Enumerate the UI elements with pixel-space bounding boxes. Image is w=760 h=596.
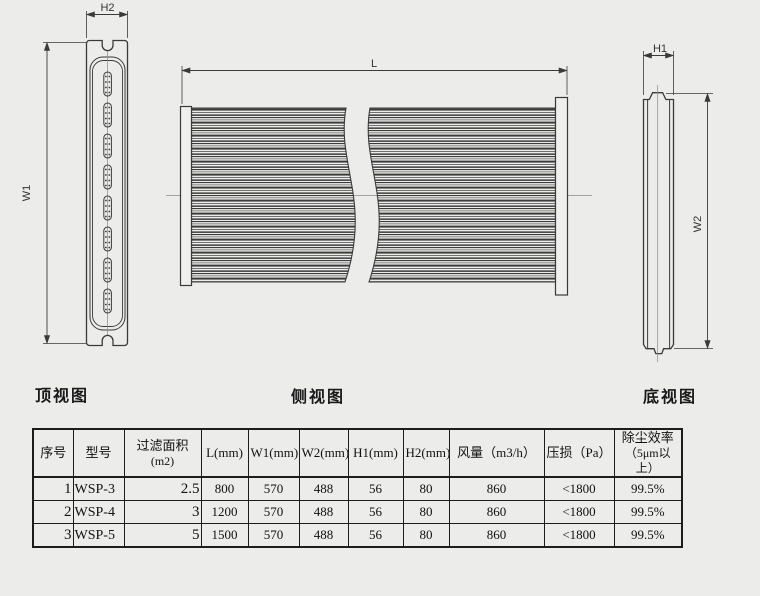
cell-w2: 488: [299, 477, 348, 501]
cell-l: 1200: [201, 501, 248, 524]
header-l: L(mm): [201, 429, 248, 477]
cell-eff: 99.5%: [614, 524, 682, 548]
cell-h1: 56: [348, 524, 403, 548]
pleated-media-right: [368, 108, 555, 282]
cell-loss: <1800: [544, 501, 614, 524]
spec-table: 序号 型号 过滤面积(m2) L(mm) W1(mm) W2(mm) H1(mm…: [32, 428, 683, 548]
cell-w2: 488: [299, 524, 348, 548]
cell-w1: 570: [248, 524, 299, 548]
header-h2: H2(mm): [403, 429, 449, 477]
pleated-media-left: [192, 108, 356, 282]
drawings-canvas: H2 W1: [0, 0, 760, 420]
side-view-label: 侧视图: [291, 383, 345, 407]
cell-eff: 99.5%: [614, 477, 682, 501]
cell-h2: 80: [403, 477, 449, 501]
header-w1: W1(mm): [248, 429, 299, 477]
side-view-drawing: L: [166, 58, 592, 295]
cell-w2: 488: [299, 501, 348, 524]
cell-area: 2.5: [124, 477, 201, 501]
cell-area: 5: [124, 524, 201, 548]
table-row: 1 WSP-3 2.5 800 570 488 56 80 860 <1800 …: [33, 477, 682, 501]
left-end-cap: [181, 107, 192, 286]
cell-l: 1500: [201, 524, 248, 548]
cell-h2: 80: [403, 524, 449, 548]
cell-model: WSP-4: [73, 501, 124, 524]
cell-h1: 56: [348, 477, 403, 501]
cell-flow: 860: [449, 501, 544, 524]
cell-loss: <1800: [544, 524, 614, 548]
header-air-flow: 风量（m3/h）: [449, 429, 544, 477]
cell-h2: 80: [403, 501, 449, 524]
table-row: 3 WSP-5 5 1500 570 488 56 80 860 <1800 9…: [33, 524, 682, 548]
top-view-label: 顶视图: [35, 382, 89, 406]
cell-l: 800: [201, 477, 248, 501]
cell-eff: 99.5%: [614, 501, 682, 524]
w1-dimension-label: W1: [21, 185, 33, 202]
cell-w1: 570: [248, 477, 299, 501]
header-w2: W2(mm): [299, 429, 348, 477]
l-dimension-label: L: [371, 58, 377, 70]
header-h1: H1(mm): [348, 429, 403, 477]
cell-no: 1: [33, 477, 73, 501]
table-row: 2 WSP-4 3 1200 570 488 56 80 860 <1800 9…: [33, 501, 682, 524]
h1-dimension-label: H1: [653, 43, 667, 55]
cell-no: 2: [33, 501, 73, 524]
header-pressure-loss: 压损（Pa）: [544, 429, 614, 477]
h2-dimension-label: H2: [100, 2, 114, 14]
cell-flow: 860: [449, 477, 544, 501]
header-filter-area: 过滤面积(m2): [124, 429, 201, 477]
right-end-cap: [556, 98, 568, 296]
cell-loss: <1800: [544, 477, 614, 501]
bottom-view-drawing: H1 W2: [644, 43, 714, 362]
cell-h1: 56: [348, 501, 403, 524]
bottom-view-label: 底视图: [643, 383, 697, 407]
w2-dimension-label: W2: [692, 216, 704, 233]
header-model: 型号: [73, 429, 124, 477]
drawing-sheet: H2 W1: [0, 0, 760, 596]
top-view-drawing: H2 W1: [21, 2, 128, 346]
cell-no: 3: [33, 524, 73, 548]
cell-area: 3: [124, 501, 201, 524]
header-no: 序号: [33, 429, 73, 477]
cell-w1: 570: [248, 501, 299, 524]
spec-table-header: 序号 型号 过滤面积(m2) L(mm) W1(mm) W2(mm) H1(mm…: [33, 429, 682, 477]
cell-model: WSP-3: [73, 477, 124, 501]
cell-flow: 860: [449, 524, 544, 548]
cell-model: WSP-5: [73, 524, 124, 548]
header-efficiency: 除尘效率（5μm以上）: [614, 429, 682, 477]
